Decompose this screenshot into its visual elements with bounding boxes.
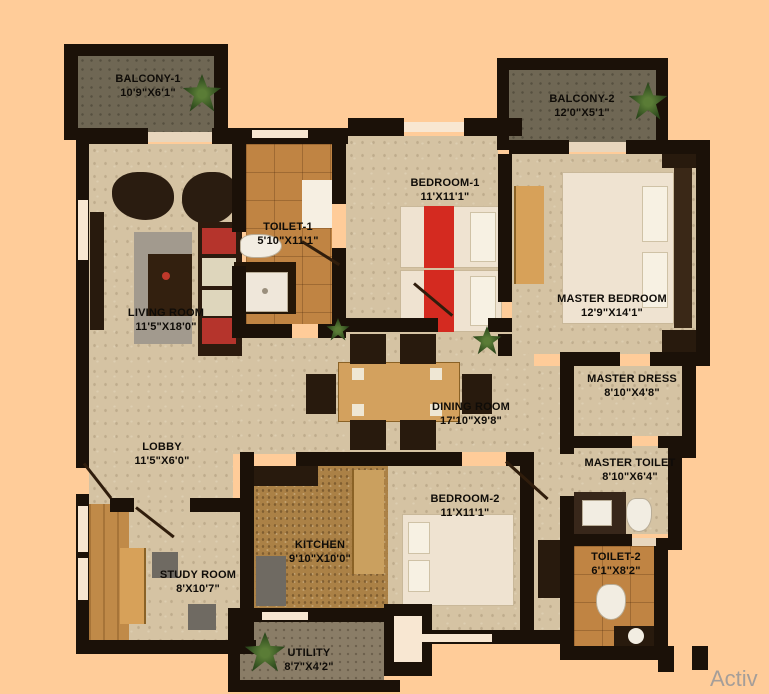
room-dims: 6'1"X8'2": [566, 564, 666, 578]
study-chair: [188, 604, 216, 630]
room-dims: 12'0"X5'1": [512, 106, 652, 120]
sink: [628, 628, 644, 644]
room-label-study-room: STUDY ROOM 8'X10'7": [130, 568, 266, 597]
window: [414, 634, 492, 642]
watermark-text: Activ: [710, 666, 758, 692]
room-label-dining-room: DINING ROOM 17'10"X9'8": [398, 400, 544, 429]
room-dims: 9'10"X10'0": [260, 552, 380, 566]
room-dims: 12'9"X14'1": [544, 306, 680, 320]
wall: [190, 498, 254, 512]
sofa-cushion: [202, 258, 236, 286]
room-label-living-room: LIVING ROOM 11'5"X18'0": [96, 306, 236, 335]
wall: [488, 318, 512, 332]
pillow: [470, 212, 496, 262]
room-name: BEDROOM-2: [404, 492, 526, 506]
room-label-toilet1: TOILET-1 5'10"X11'1": [234, 220, 342, 249]
dining-chair: [400, 334, 436, 364]
placemat: [352, 368, 364, 380]
placemat: [430, 368, 442, 380]
floor-plan: BALCONY-1 10'9"X6'1" BALCONY-2 12'0"X5'1…: [0, 0, 769, 694]
wardrobe: [514, 186, 544, 284]
room-name: BALCONY-1: [80, 72, 216, 86]
room-name: UTILITY: [250, 646, 368, 660]
wall: [240, 452, 254, 654]
wall: [696, 140, 710, 366]
room-dims: 8'10"X4'8": [574, 386, 690, 400]
room-label-toilet2: TOILET-2 6'1"X8'2": [566, 550, 666, 579]
room-label-utility: UTILITY 8'7"X4'2": [250, 646, 368, 675]
room-dims: 11'5"X18'0": [96, 320, 236, 334]
kitchen-cabinet: [254, 466, 318, 486]
window: [78, 558, 88, 600]
room-dims: 11'X11'1": [384, 190, 506, 204]
room-name: TOILET-2: [566, 550, 666, 564]
wall: [232, 128, 246, 232]
room-name: MASTER TOILET: [568, 456, 692, 470]
room-dims: 8'X10'7": [130, 582, 266, 596]
room-dims: 5'10"X11'1": [234, 234, 342, 248]
sink: [582, 500, 612, 526]
wall: [658, 436, 682, 448]
nightstand: [662, 330, 696, 352]
room-dims: 10'9"X6'1": [80, 86, 216, 100]
wall: [346, 318, 438, 332]
wall: [332, 136, 346, 204]
room-name: BALCONY-2: [512, 92, 652, 106]
wall: [509, 140, 569, 154]
window: [404, 122, 464, 132]
room-name: BEDROOM-1: [384, 176, 506, 190]
wall: [232, 324, 292, 338]
wall: [110, 498, 134, 512]
room-name: LIVING ROOM: [96, 306, 236, 320]
shower-drain: [262, 288, 268, 294]
wall: [560, 436, 632, 448]
dining-chair: [306, 374, 336, 414]
wall: [656, 58, 668, 150]
wall: [682, 354, 696, 448]
room-label-balcony2: BALCONY-2 12'0"X5'1": [512, 92, 652, 121]
wall: [228, 680, 400, 692]
room-label-master-toilet: MASTER TOILET 8'10"X6'4": [568, 456, 692, 485]
window: [252, 130, 308, 138]
door-threshold: [632, 538, 656, 546]
window: [262, 612, 308, 620]
wall: [497, 58, 509, 150]
room-label-balcony1: BALCONY-1 10'9"X6'1": [80, 72, 216, 101]
wall: [464, 118, 522, 136]
room-name: LOBBY: [92, 440, 232, 454]
room-label-bedroom1: BEDROOM-1 11'X11'1": [384, 176, 506, 205]
room-dims: 8'10"X6'4": [568, 470, 692, 484]
wall: [64, 44, 78, 140]
wall: [658, 646, 674, 672]
wall: [497, 58, 668, 70]
dining-chair: [350, 420, 386, 450]
room-dims: 8'7"X4'2": [250, 660, 368, 674]
room-label-master-dress: MASTER DRESS 8'10"X4'8": [574, 372, 690, 401]
table-decor: [162, 272, 170, 280]
pillow: [408, 560, 430, 592]
shaft: [394, 616, 422, 662]
bed-runner: [424, 206, 454, 268]
toilet: [596, 584, 626, 620]
dining-chair: [350, 334, 386, 364]
room-dims: 11'X11'1": [404, 506, 526, 520]
wall: [296, 452, 462, 466]
room-label-master-bedroom: MASTER BEDROOM 12'9"X14'1": [544, 292, 680, 321]
toilet: [626, 498, 652, 532]
wall: [76, 128, 89, 468]
pillow: [642, 186, 668, 242]
balcony-door-threshold: [148, 132, 212, 142]
wall: [692, 646, 708, 670]
wall: [566, 646, 668, 660]
window: [78, 200, 88, 260]
pillow: [408, 522, 430, 554]
room-name: MASTER BEDROOM: [544, 292, 680, 306]
room-dims: 11'5"X6'0": [92, 454, 232, 468]
room-name: KITCHEN: [260, 538, 380, 552]
room-label-kitchen: KITCHEN 9'10"X10'0": [260, 538, 380, 567]
room-label-bedroom2: BEDROOM-2 11'X11'1": [404, 492, 526, 521]
wall: [348, 118, 404, 136]
room-name: DINING ROOM: [398, 400, 544, 414]
room-name: TOILET-1: [234, 220, 342, 234]
shelf-unit: [538, 540, 562, 598]
wall: [64, 44, 228, 56]
balcony-door-threshold: [569, 142, 626, 152]
wall: [650, 352, 696, 366]
room-name: STUDY ROOM: [130, 568, 266, 582]
room-label-lobby: LOBBY 11'5"X6'0": [92, 440, 232, 469]
window: [78, 506, 88, 552]
wall: [560, 496, 574, 534]
sofa-cushion: [202, 228, 236, 254]
room-dims: 17'10"X9'8": [398, 414, 544, 428]
room-name: MASTER DRESS: [574, 372, 690, 386]
placemat: [352, 404, 364, 416]
